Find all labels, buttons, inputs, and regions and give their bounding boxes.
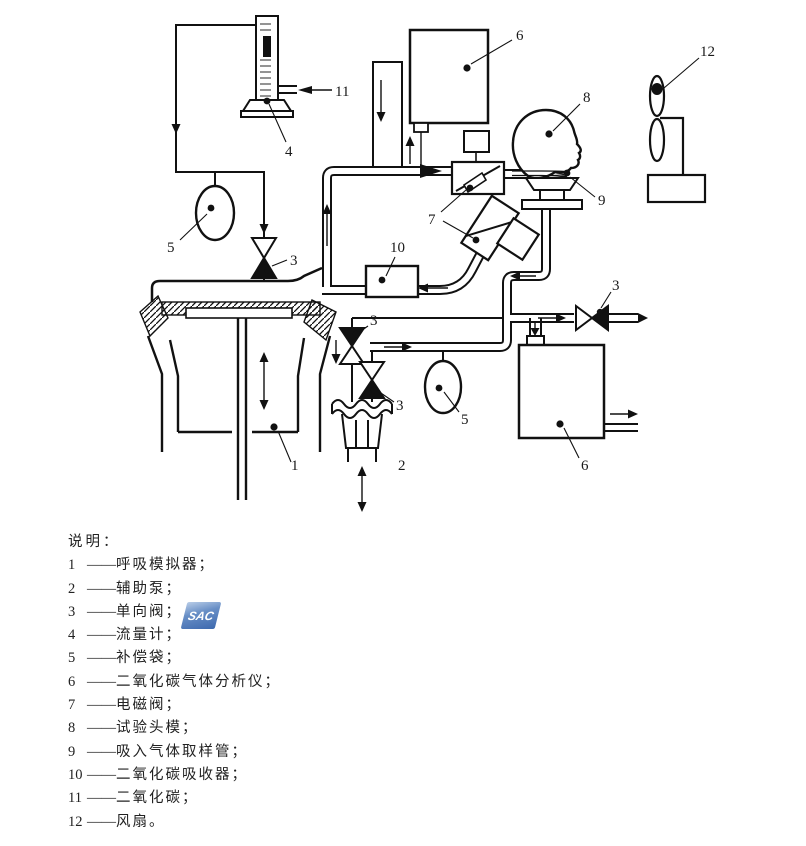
check-valve-sim [340,328,364,364]
callout-5a: 5 [167,240,175,256]
legend-item-2: 2——辅助泵； [68,578,281,601]
callout-4: 4 [285,144,293,160]
check-valve-left [252,238,276,278]
callout-12: 12 [700,44,715,60]
legend-item-6: 6——二氧化碳气体分析仪； [68,671,281,694]
flow-meter-float [263,36,271,57]
diaphragm-plate [186,308,292,318]
callout-3b: 3 [370,313,378,329]
legend-item-5: 5——补偿袋； [68,647,281,670]
legend-item-1: 1——呼吸模拟器； [68,554,281,577]
co2-supply-line [176,25,264,282]
callout-6a: 6 [516,28,524,44]
figure-page: 1 2 3 3 3 3 4 5 5 6 6 7 8 9 10 11 12 SAC… [0,0,806,846]
legend-item-7: 7——电磁阀； [68,694,281,717]
callout-3a: 3 [290,253,298,269]
legend-item-11: 11——二氧化碳； [68,787,281,810]
legend-item-9: 9——吸入气体取样管； [68,741,281,764]
legend-item-8: 8——试验头模； [68,717,281,740]
legend-item-12: 12——风扇。 [68,811,281,834]
callout-11: 11 [335,84,349,100]
co2-analyzer-bottom [519,345,638,438]
analyzer-duct [373,62,402,166]
schematic-diagram: 1 2 3 3 3 3 4 5 5 6 6 7 8 9 10 11 12 [0,0,806,524]
legend-item-3: 3——单向阀； [68,601,281,624]
legend-title: 说明： [68,531,281,554]
callout-1: 1 [291,458,299,474]
compensation-bag-left [196,186,234,240]
test-head-mold [513,110,582,209]
co2-inlet-arrow [298,86,332,94]
legend-item-10: 10——二氧化碳吸收器； [68,764,281,787]
callout-9: 9 [598,193,606,209]
check-valve-right [576,306,608,330]
legend-item-4: 4——流量计； [68,624,281,647]
solenoid-valve-upper [452,131,504,194]
callout-7: 7 [428,212,436,228]
flow-out-arrowhead [638,313,648,323]
auxiliary-pump [332,400,392,462]
callout-6b: 6 [581,458,589,474]
compensation-bag-center [425,361,461,413]
callout-10: 10 [390,240,405,256]
callout-5b: 5 [461,412,469,428]
callout-8: 8 [583,90,591,106]
callout-3c: 3 [396,398,404,414]
breathing-simulator [140,268,336,500]
callout-2: 2 [398,458,406,474]
fan [648,76,705,202]
co2-absorber [366,266,418,297]
callout-3d: 3 [612,278,620,294]
legend: 说明： 1——呼吸模拟器； 2——辅助泵； 3——单向阀； 4——流量计； 5—… [68,531,281,834]
